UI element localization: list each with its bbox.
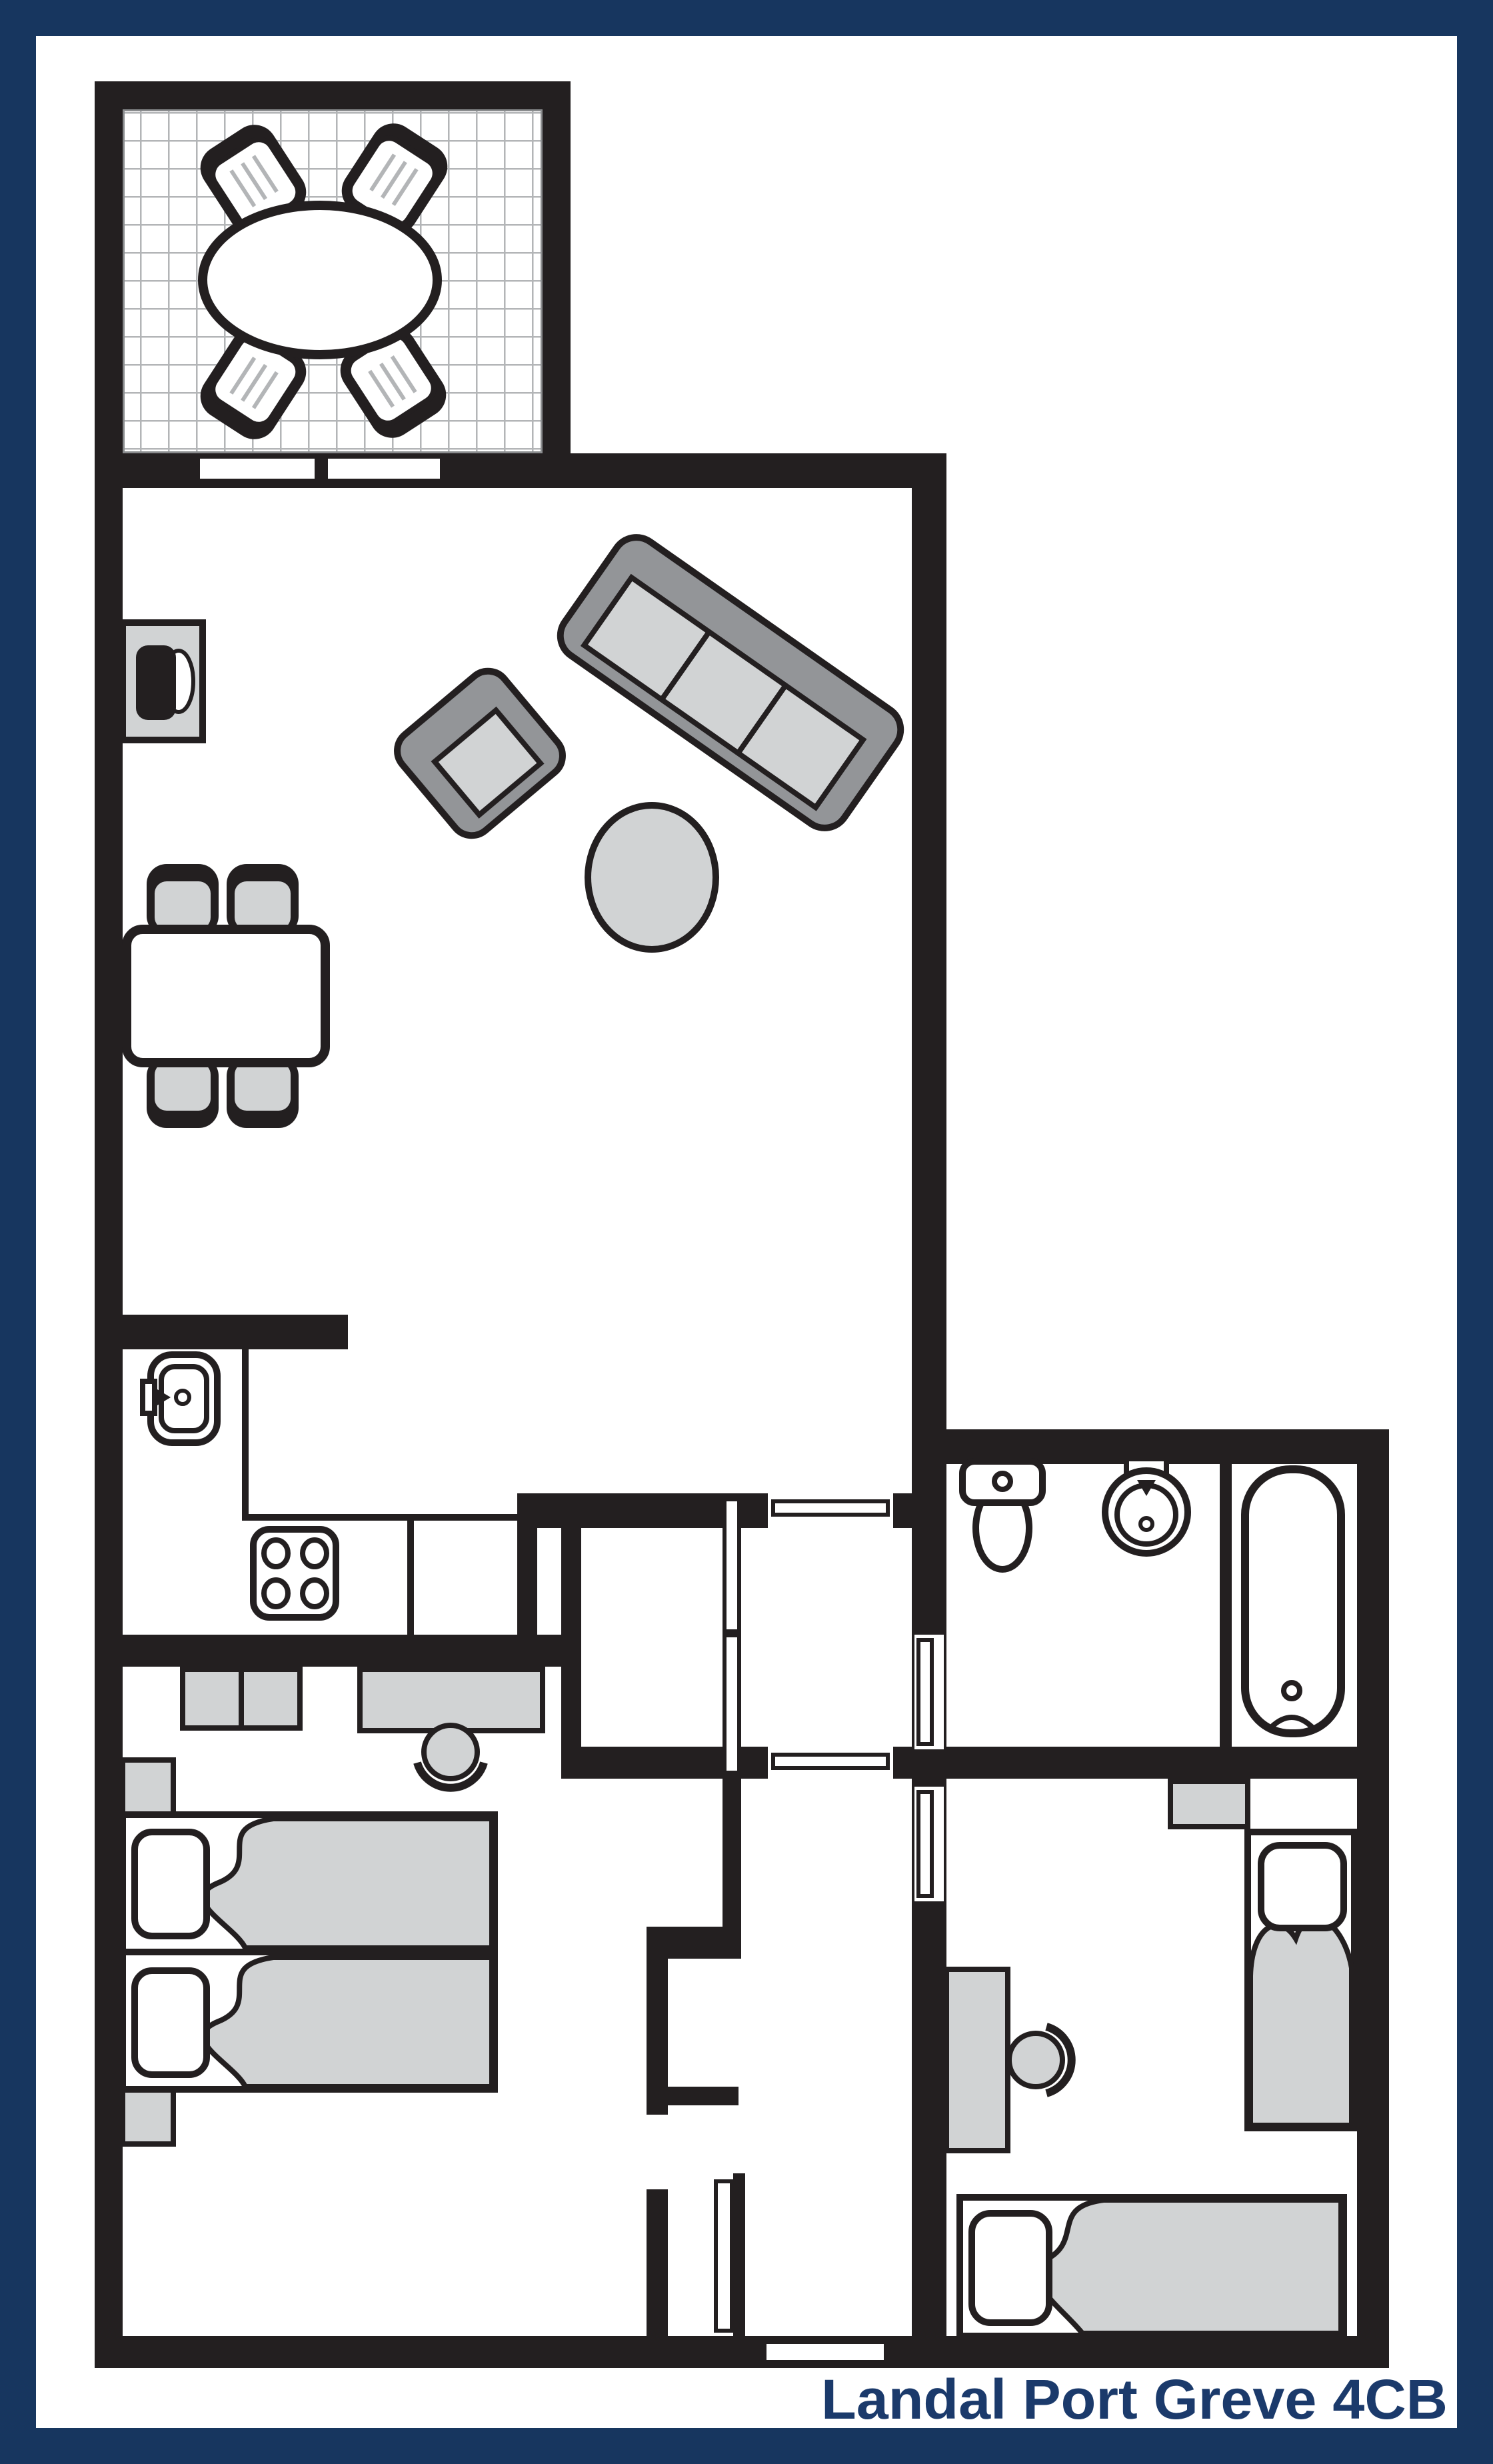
door-leaf xyxy=(918,1792,932,1896)
wall-segment xyxy=(95,1635,581,1667)
duvet xyxy=(1250,1919,1352,2125)
plan-title: Landal Port Greve 4CB xyxy=(821,2368,1448,2431)
wardrobe-unit xyxy=(183,1669,241,1728)
window xyxy=(200,459,315,479)
wall-segment xyxy=(723,1779,741,1947)
wall-segment xyxy=(647,1927,741,1959)
single-bed-bottom xyxy=(960,2197,1344,2336)
tv-cabinet xyxy=(123,623,203,740)
desk xyxy=(360,1669,543,1731)
wall-segment xyxy=(668,2087,739,2105)
double-bed xyxy=(123,1815,495,2089)
front-door xyxy=(766,2344,884,2360)
pillow xyxy=(135,1832,207,1936)
kitchen-sink xyxy=(143,1355,217,1443)
burner xyxy=(264,1540,288,1567)
floor-plan-canvas: Landal Port Greve 4CB xyxy=(0,0,1493,2464)
door-leaf xyxy=(716,2181,732,2331)
tv-icon xyxy=(136,645,176,720)
pillow xyxy=(1261,1845,1344,1928)
wall-segment xyxy=(95,1315,348,1349)
wall-segment xyxy=(95,2336,1389,2368)
desk-chair xyxy=(1009,2027,1072,2093)
wall-segment xyxy=(561,1747,1389,1779)
wall-segment xyxy=(95,81,571,109)
single-bed-right xyxy=(1248,1832,1354,2128)
sink-tap xyxy=(143,1381,155,1413)
bathtub xyxy=(1245,1469,1341,1733)
wall-segment xyxy=(912,488,946,1429)
nightstand xyxy=(123,1760,173,1816)
burner xyxy=(303,1580,327,1607)
stove-hob xyxy=(253,1529,336,1617)
terrace-dining-table xyxy=(203,205,437,355)
basin-drain xyxy=(1140,1518,1152,1530)
wall-segment xyxy=(517,1493,537,1635)
coffee-table xyxy=(588,805,716,949)
window xyxy=(328,459,440,479)
closet-door-strip xyxy=(727,1501,737,1629)
burner xyxy=(303,1540,327,1567)
tub-drain xyxy=(1284,1683,1300,1699)
cabinet xyxy=(1170,1781,1248,1827)
door-jamb xyxy=(733,2173,745,2336)
wall-segment xyxy=(95,453,123,2368)
wall-segment xyxy=(647,1959,668,2115)
wall-segment xyxy=(647,2189,668,2336)
burner xyxy=(264,1580,288,1607)
floor-plan-page: Landal Port Greve 4CB xyxy=(0,0,1493,2464)
duvet xyxy=(1037,2200,1341,2333)
wardrobe-unit xyxy=(241,1669,300,1728)
bathroom-divider-wall xyxy=(1220,1464,1232,1747)
door-leaf xyxy=(773,1755,888,1768)
duvet xyxy=(203,1819,492,1948)
closet-door-strip xyxy=(727,1637,737,1771)
terrace xyxy=(123,109,543,453)
door-leaf xyxy=(918,1640,932,1744)
desk xyxy=(946,1969,1008,2151)
sink-drain xyxy=(176,1391,189,1404)
wall-segment xyxy=(1357,1464,1389,2336)
duvet xyxy=(203,1957,492,2087)
wall-segment xyxy=(543,81,571,453)
nightstand xyxy=(123,2088,173,2144)
wall-segment xyxy=(95,81,123,453)
dining-table xyxy=(127,929,325,1063)
pillow xyxy=(972,2213,1049,2323)
desk-chair xyxy=(417,1725,484,1788)
door-leaf xyxy=(773,1501,888,1515)
pillow xyxy=(135,1971,207,2075)
